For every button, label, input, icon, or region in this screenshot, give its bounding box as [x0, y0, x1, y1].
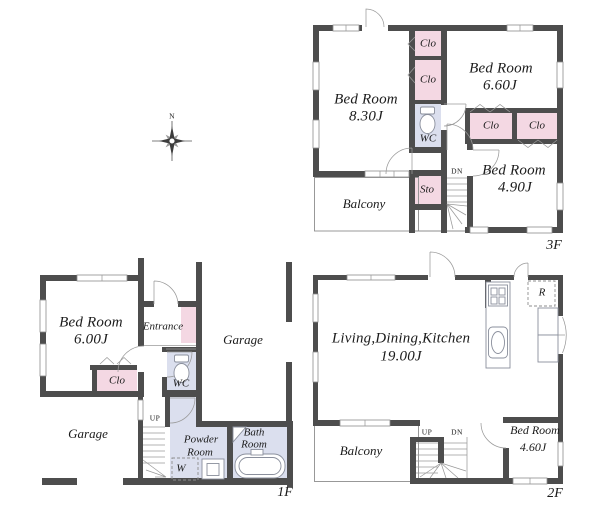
f2-bedroom-name: Bed Room	[510, 423, 560, 437]
f1-windows	[40, 275, 143, 420]
f2-ldk-name: Living,Dining,Kitchen	[331, 330, 470, 346]
f3-wc-label: WC	[420, 133, 437, 145]
f1-floor-label: 1F	[277, 485, 293, 500]
f2-kitchen-counter-icon	[486, 282, 510, 368]
f3-bedroom-c-size: 4.90J	[498, 179, 533, 195]
f2-floor-label: 2F	[547, 486, 563, 501]
f3-stairs	[447, 178, 467, 229]
f1-wc-label: WC	[173, 378, 190, 390]
f3-bedroom-a-name: Bed Room	[334, 91, 398, 107]
f3-closet-b-label: Clo	[420, 74, 436, 86]
f1-vanity-sink-icon	[202, 459, 224, 479]
f1-bath-room-line2: Room	[240, 439, 267, 451]
f3-bedroom-a-size: 8.30J	[349, 108, 384, 124]
f2-ldk-size: 19.00J	[380, 348, 423, 364]
f1-bedroom-name: Bed Room	[59, 314, 123, 330]
f2-cupboard-icon	[538, 308, 558, 362]
f3-balcony-label: Balcony	[343, 196, 386, 211]
f2-stairs-down-label: DN	[451, 428, 463, 437]
floor-plan-3f: Bed Room 8.30J Bed Room 6.60J Bed Room 4…	[313, 9, 563, 253]
f3-closet-c-label: Clo	[483, 120, 499, 132]
f3-toilet-icon	[420, 107, 435, 134]
f1-closet-door-marks	[100, 358, 131, 365]
f1-bath-room-line1: Bath	[244, 427, 265, 439]
f1-washer-label: W	[176, 463, 186, 475]
f1-entrance-label: Entrance	[142, 321, 183, 333]
f3-bedroom-b-size: 6.60J	[483, 77, 518, 93]
f1-powder-room-line1: Powder	[183, 434, 219, 446]
f1-stairs-up-label: UP	[150, 414, 160, 423]
f1-garage-right-label: Garage	[223, 332, 263, 347]
compass-north-label: N	[169, 112, 175, 121]
f2-refrigerator-label: R	[538, 287, 546, 299]
f3-closet-d-label: Clo	[529, 120, 545, 132]
f3-storage-label: Sto	[420, 184, 435, 196]
f1-closet-label: Clo	[109, 375, 125, 387]
compass-rose-icon: N	[152, 112, 192, 161]
floor-plan-1f: Bed Room 6.00J Entrance Garage Clo WC Ga…	[40, 258, 293, 500]
f1-powder-room-line2: Room	[186, 447, 213, 459]
f3-floor-label: 3F	[545, 238, 562, 253]
f2-bedroom-size: 4.60J	[520, 440, 547, 454]
f3-bedroom-c-name: Bed Room	[482, 162, 546, 178]
f2-stairs-up-label: UP	[422, 428, 432, 437]
f3-closet-a-label: Clo	[420, 38, 436, 50]
floor-plan-2f: Living,Dining,Kitchen 19.00J R Balcony U…	[313, 252, 566, 501]
floor-plan-page: N	[0, 0, 600, 508]
f1-bedroom-size: 6.00J	[74, 331, 109, 347]
f2-balcony-label: Balcony	[340, 443, 383, 458]
f3-bedroom-b-name: Bed Room	[469, 60, 533, 76]
f1-garage-left-label: Garage	[68, 426, 108, 441]
f1-stairs	[143, 427, 166, 477]
floor-plan-canvas: N	[0, 0, 600, 508]
f3-stairs-down-label: DN	[451, 167, 463, 176]
